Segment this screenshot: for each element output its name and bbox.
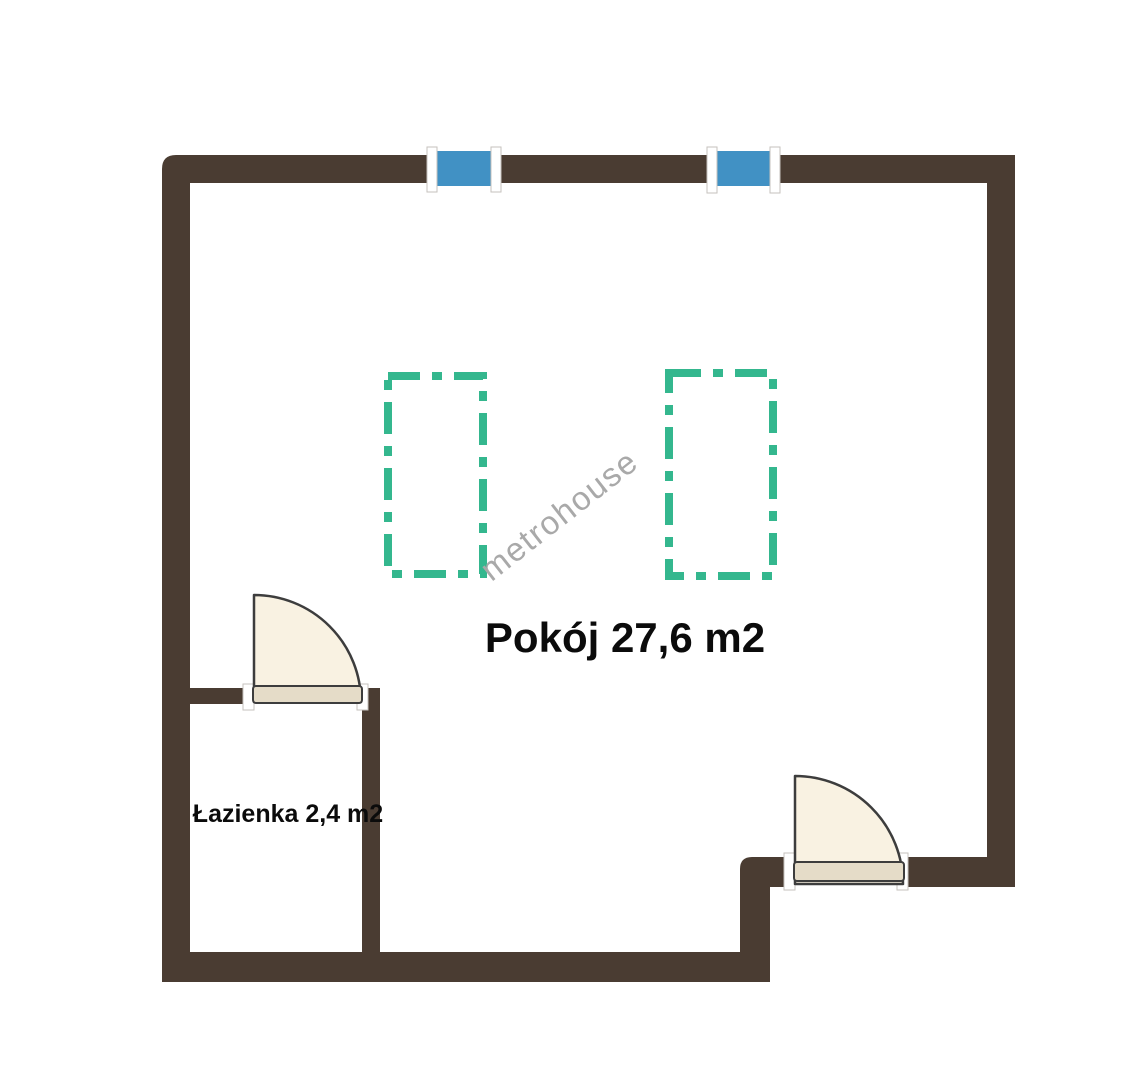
exterior-wall-right — [987, 155, 1015, 887]
entrance-door-panel — [794, 862, 904, 881]
window-1-glass — [435, 151, 493, 186]
exterior-wall-entry-right — [903, 857, 1015, 887]
floor-plan-svg: metrohouse Pokój 27,6 m2 Łazienka 2,4 m2 — [0, 0, 1138, 1080]
interior-wall-bathroom-top — [162, 688, 245, 704]
bathroom-door-panel — [253, 686, 362, 703]
window-2-frame-left — [707, 147, 717, 193]
window-1-frame-right — [491, 147, 501, 192]
window-2-frame-right — [770, 147, 780, 193]
exterior-wall-bottom — [162, 952, 770, 982]
room-label-main: Pokój 27,6 m2 — [485, 614, 765, 661]
window-2-glass — [713, 151, 772, 186]
room-label-bathroom: Łazienka 2,4 m2 — [193, 800, 383, 828]
floor-plan-canvas: metrohouse Pokój 27,6 m2 Łazienka 2,4 m2 — [0, 0, 1138, 1080]
window-1-frame-left — [427, 147, 437, 192]
window-1 — [427, 147, 501, 192]
